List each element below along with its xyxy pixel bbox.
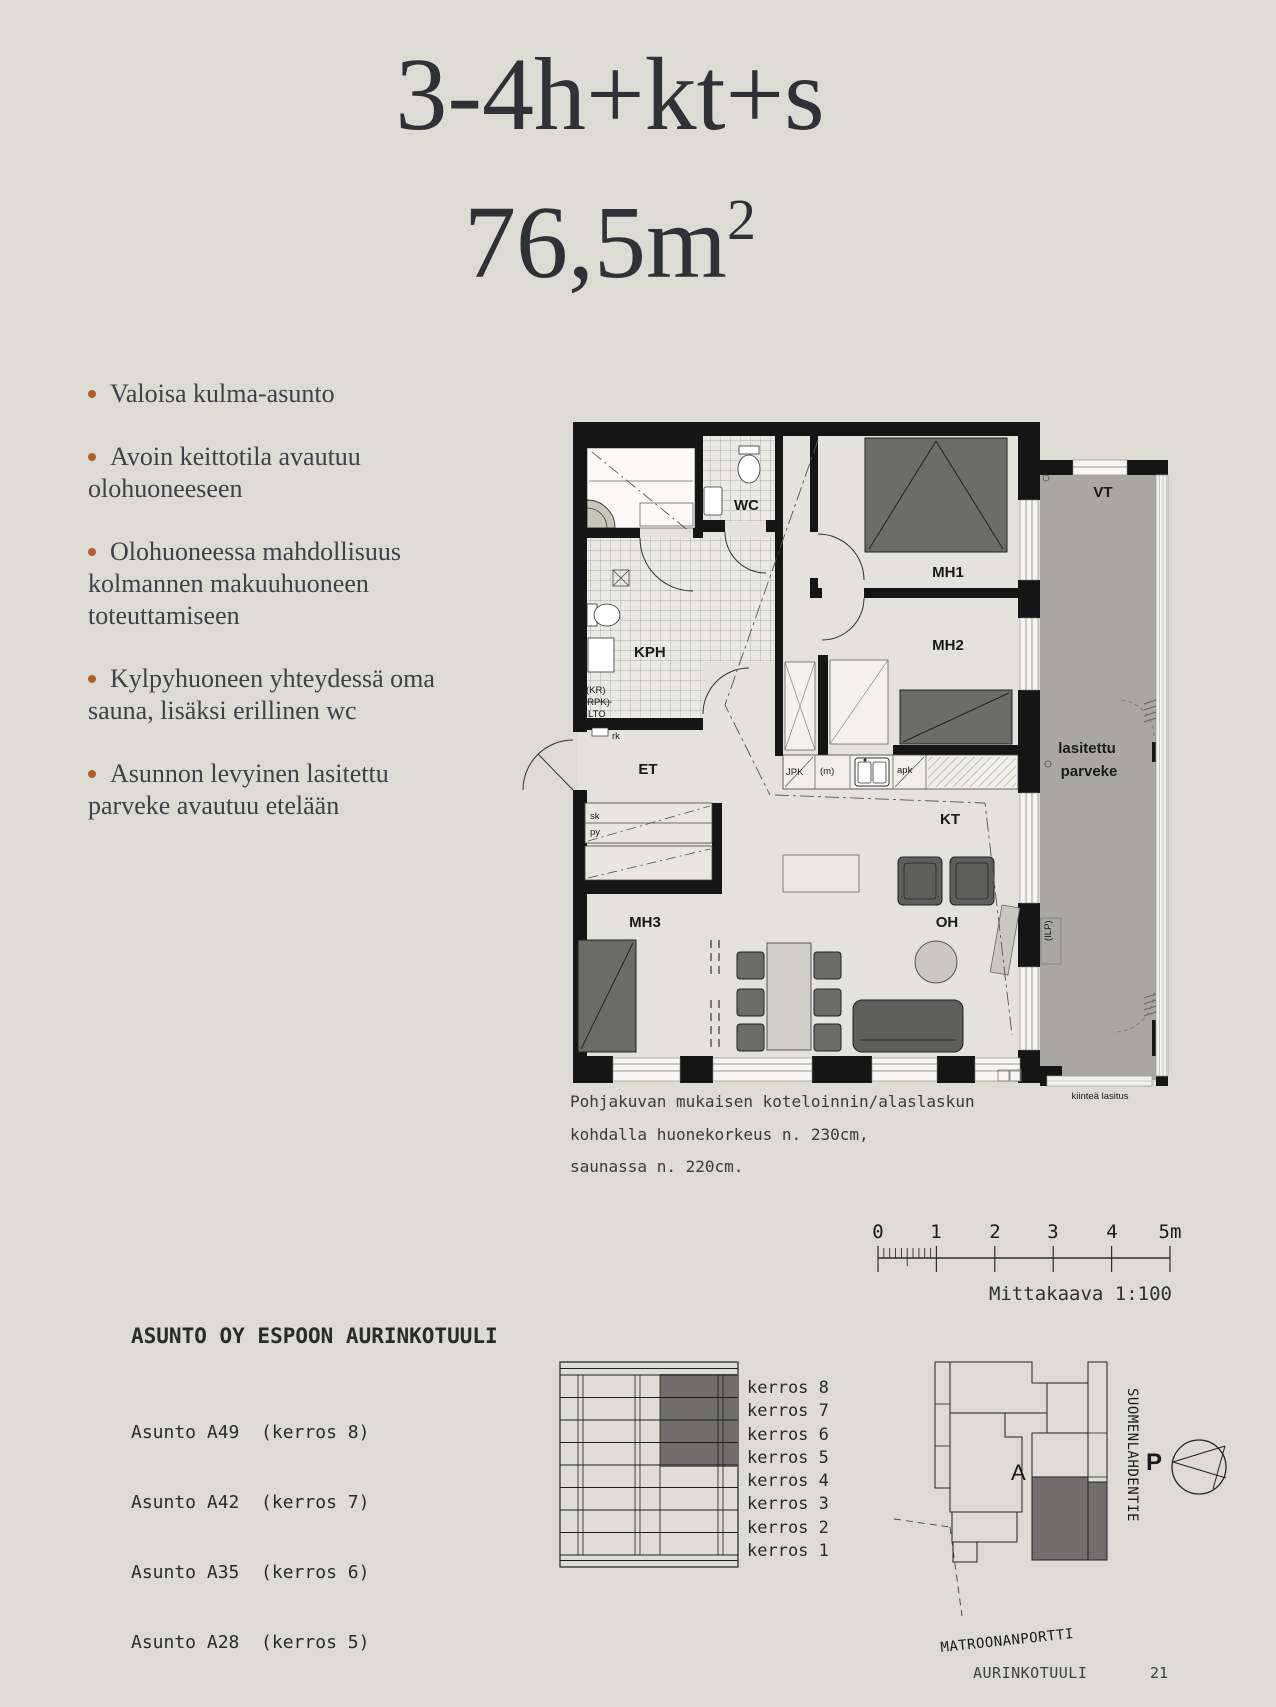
room-label-kt: KT	[940, 811, 960, 828]
sauna-bench	[640, 503, 693, 526]
area-superscript: 2	[727, 187, 756, 252]
bullet-icon	[88, 548, 96, 556]
toilet	[594, 604, 620, 626]
bullet-icon	[88, 390, 96, 398]
room-label-kph: KPH	[634, 644, 666, 661]
label-jpk: JPK	[786, 767, 804, 778]
apartment-list-item: Asunto A49 (kerros 8)	[131, 1421, 498, 1444]
label-apk: apk	[897, 765, 913, 776]
side-table	[915, 941, 957, 983]
sink	[704, 487, 722, 515]
label-sk: sk	[590, 811, 600, 822]
scale-tick-label: 4	[1106, 1221, 1117, 1243]
feature-list: Valoisa kulma-asunto Avoin keittotila av…	[88, 378, 466, 853]
caption-line: saunassa n. 220cm.	[570, 1151, 975, 1184]
room-label-et: ET	[638, 761, 657, 778]
plan-caption: Pohjakuvan mukaisen koteloinnin/alaslask…	[570, 1086, 975, 1184]
balcony-label-1: lasitettu	[1058, 740, 1116, 757]
floor-label: kerros 1	[747, 1540, 829, 1563]
toilet	[738, 455, 760, 483]
caption-line: kohdalla huonekorkeus n. 230cm,	[570, 1119, 975, 1152]
feature-item: Valoisa kulma-asunto	[88, 378, 466, 410]
page-number: 21	[1150, 1664, 1168, 1682]
kitchen-island	[783, 855, 859, 892]
room-label-mh1: MH1	[932, 564, 964, 581]
apartment-list-item: Asunto A42 (kerros 7)	[131, 1491, 498, 1514]
label-ilp: (ILP)	[1043, 920, 1054, 941]
bullet-icon	[88, 675, 96, 683]
street-label-bottom: MATROONANPORTTI	[940, 1626, 1075, 1656]
caption-line: Pohjakuvan mukaisen koteloinnin/alaslask…	[570, 1086, 975, 1119]
label-fixed-glazing: kiinteä lasitus	[1071, 1091, 1128, 1102]
site-map: A SUOMENLAHDENTIE P MATROONANPORTTI	[890, 1345, 1236, 1707]
counter-hatch	[928, 757, 1016, 787]
footer-project-name: AURINKOTUULI	[973, 1664, 1087, 1682]
apartment-list: Asunto A49 (kerros 8) Asunto A42 (kerros…	[131, 1374, 498, 1702]
bullet-icon	[88, 770, 96, 778]
floor-label: kerros 5	[747, 1447, 829, 1470]
building-label: A	[1011, 1460, 1026, 1485]
compass-icon	[1172, 1440, 1226, 1494]
label-rk: rk	[612, 731, 620, 742]
sofa	[853, 1000, 963, 1052]
feature-text: Asunnon levyinen lasitettu parveke avaut…	[88, 759, 389, 820]
scale-bar: 0 1 2 3 4 5m	[860, 1216, 1190, 1278]
highlighted-wing	[1088, 1482, 1107, 1560]
scale-tick-label: 0	[872, 1221, 883, 1243]
highlighted-floors	[660, 1374, 738, 1467]
elevation-diagram	[554, 1356, 754, 1572]
room-label-vt: VT	[1093, 484, 1112, 501]
project-heading: ASUNTO OY ESPOON AURINKOTUULI	[131, 1324, 498, 1348]
north-label: P	[1146, 1449, 1162, 1476]
floor-label: kerros 6	[747, 1424, 829, 1447]
project-block: ASUNTO OY ESPOON AURINKOTUULI Asunto A49…	[131, 1324, 498, 1702]
room-label-mh2: MH2	[932, 637, 964, 654]
floor-plan: VT WC KPH MH1 MH2 MH3 ET KT OH lasitettu…	[520, 415, 1185, 1115]
balcony-label-2: parveke	[1061, 763, 1118, 780]
scale-tick-label: 5m	[1159, 1221, 1182, 1243]
feature-text: Olohuoneessa mahdollisuus kolmannen maku…	[88, 537, 401, 630]
scale-text: Mittakaava 1:100	[900, 1283, 1172, 1305]
scale-tick-label: 2	[989, 1221, 1000, 1243]
scale-tick-label: 1	[930, 1221, 941, 1243]
apartment-area-label: 76,5m2	[0, 156, 1220, 307]
street-label-side: SUOMENLAHDENTIE	[1124, 1388, 1140, 1522]
highlighted-wing	[1032, 1477, 1088, 1560]
label-py: py	[590, 827, 600, 838]
brochure-page: 3-4h+kt+s 76,5m2 Valoisa kulma-asunto Av…	[0, 0, 1276, 1707]
feature-item: Kylpyhuoneen yhteydessä oma sauna, lisäk…	[88, 663, 466, 727]
feature-text: Valoisa kulma-asunto	[110, 379, 335, 408]
label-lto: LTO	[588, 709, 606, 720]
apartment-list-item: Asunto A28 (kerros 5)	[131, 1631, 498, 1654]
kph-tiles	[587, 537, 775, 662]
floor-label: kerros 2	[747, 1517, 829, 1540]
closet	[585, 846, 712, 880]
washer	[588, 638, 614, 672]
label-m: (m)	[820, 766, 834, 777]
bullet-icon	[88, 453, 96, 461]
feature-item: Asunnon levyinen lasitettu parveke avaut…	[88, 758, 466, 822]
bed-mh1	[865, 438, 1007, 552]
floor-label-list: kerros 8 kerros 7 kerros 6 kerros 5 kerr…	[747, 1377, 829, 1563]
page-title: 3-4h+kt+s 76,5m2	[0, 34, 1220, 307]
room-label-wc: WC	[734, 497, 759, 514]
area-value: 76,5m	[464, 185, 727, 300]
room-label-mh3: MH3	[629, 914, 661, 931]
feature-text: Kylpyhuoneen yhteydessä oma sauna, lisäk…	[88, 664, 435, 725]
apartment-type-label: 3-4h+kt+s	[0, 34, 1220, 156]
feature-item: Avoin keittotila avautuu olohuoneeseen	[88, 441, 466, 505]
rk-box	[592, 728, 608, 736]
apartment-list-item: Asunto A35 (kerros 6)	[131, 1561, 498, 1584]
sauna	[587, 448, 695, 532]
dining-table	[767, 943, 811, 1050]
floor-label: kerros 7	[747, 1400, 829, 1423]
feature-text: Avoin keittotila avautuu olohuoneeseen	[88, 442, 361, 503]
scale-tick-label: 3	[1047, 1221, 1058, 1243]
feature-item: Olohuoneessa mahdollisuus kolmannen maku…	[88, 536, 466, 632]
room-label-oh: OH	[936, 914, 959, 931]
label-rpk: (RPK)	[584, 697, 610, 708]
floor-label: kerros 3	[747, 1493, 829, 1516]
label-kr: (KR)	[586, 685, 606, 696]
floor-label: kerros 4	[747, 1470, 829, 1493]
floor-label: kerros 8	[747, 1377, 829, 1400]
